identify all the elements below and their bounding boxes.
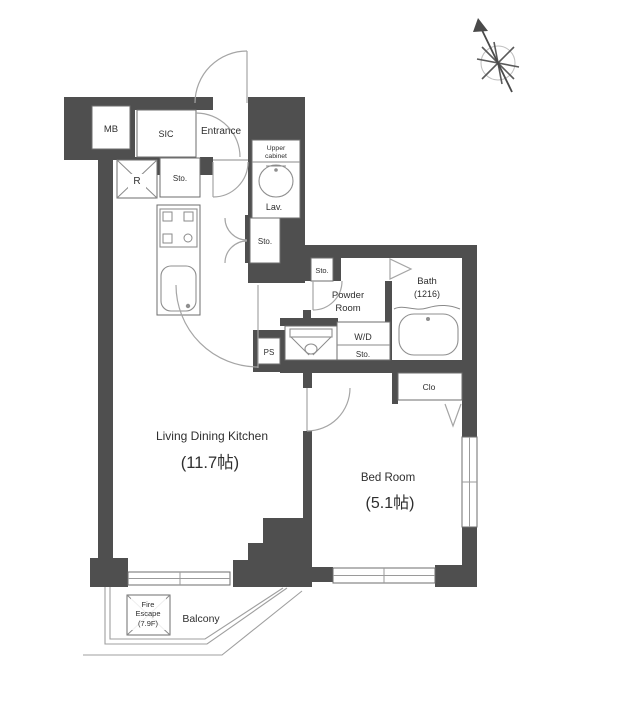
label-fire-escape-3: (7.9F) bbox=[138, 619, 159, 628]
label-shoe-closet: SIC bbox=[158, 129, 174, 139]
label-fire-escape-1: Fire bbox=[142, 600, 155, 609]
floor-plan-canvas: MB SIC Entrance Upper cabinet Lav. R Sto… bbox=[0, 0, 623, 717]
compass-rose bbox=[473, 18, 519, 92]
label-ldk-size: (11.7帖) bbox=[181, 453, 239, 472]
stove bbox=[160, 209, 197, 247]
window-ldk bbox=[128, 572, 230, 585]
label-bedroom-size: (5.1帖) bbox=[366, 494, 415, 512]
label-storage-powder: Sto. bbox=[315, 266, 328, 275]
label-powder-room-1: Powder bbox=[332, 290, 364, 301]
floor-plan: MB SIC Entrance Upper cabinet Lav. R Sto… bbox=[0, 0, 623, 717]
washbasin bbox=[259, 165, 293, 197]
hall-storage-door bbox=[213, 162, 248, 197]
label-bedroom: Bed Room bbox=[361, 472, 415, 484]
label-washer-dryer-storage: Sto. bbox=[356, 350, 370, 359]
window-bedroom-east bbox=[462, 437, 477, 527]
label-upper-cabinet-1: Upper bbox=[267, 145, 286, 152]
label-bath-size: (1216) bbox=[414, 289, 440, 299]
label-fire-escape-2: Escape bbox=[135, 609, 160, 618]
label-bath: Bath bbox=[417, 276, 437, 287]
closet-folding-door bbox=[445, 404, 461, 426]
label-refrigerator: R bbox=[133, 176, 140, 187]
label-balcony: Balcony bbox=[182, 613, 220, 625]
label-storage-corridor: Sto. bbox=[258, 237, 272, 246]
label-washer-dryer: W/D bbox=[354, 332, 372, 342]
label-pipe-space: PS bbox=[264, 348, 275, 357]
label-powder-room-2: Room bbox=[335, 303, 360, 314]
label-storage-hall: Sto. bbox=[173, 174, 187, 183]
label-lavatory: Lav. bbox=[266, 202, 282, 212]
window-bedroom-south bbox=[333, 568, 435, 583]
label-upper-cabinet-2: cabinet bbox=[265, 153, 287, 160]
label-ldk: Living Dining Kitchen bbox=[156, 429, 268, 443]
corridor-storage-bifold-door bbox=[225, 218, 247, 263]
bath-folding-door bbox=[390, 259, 411, 279]
bedroom-door bbox=[307, 388, 350, 431]
bathtub bbox=[394, 305, 460, 355]
label-closet: Clo bbox=[423, 382, 436, 392]
label-entrance: Entrance bbox=[201, 126, 241, 137]
label-meter-box: MB bbox=[104, 124, 118, 135]
